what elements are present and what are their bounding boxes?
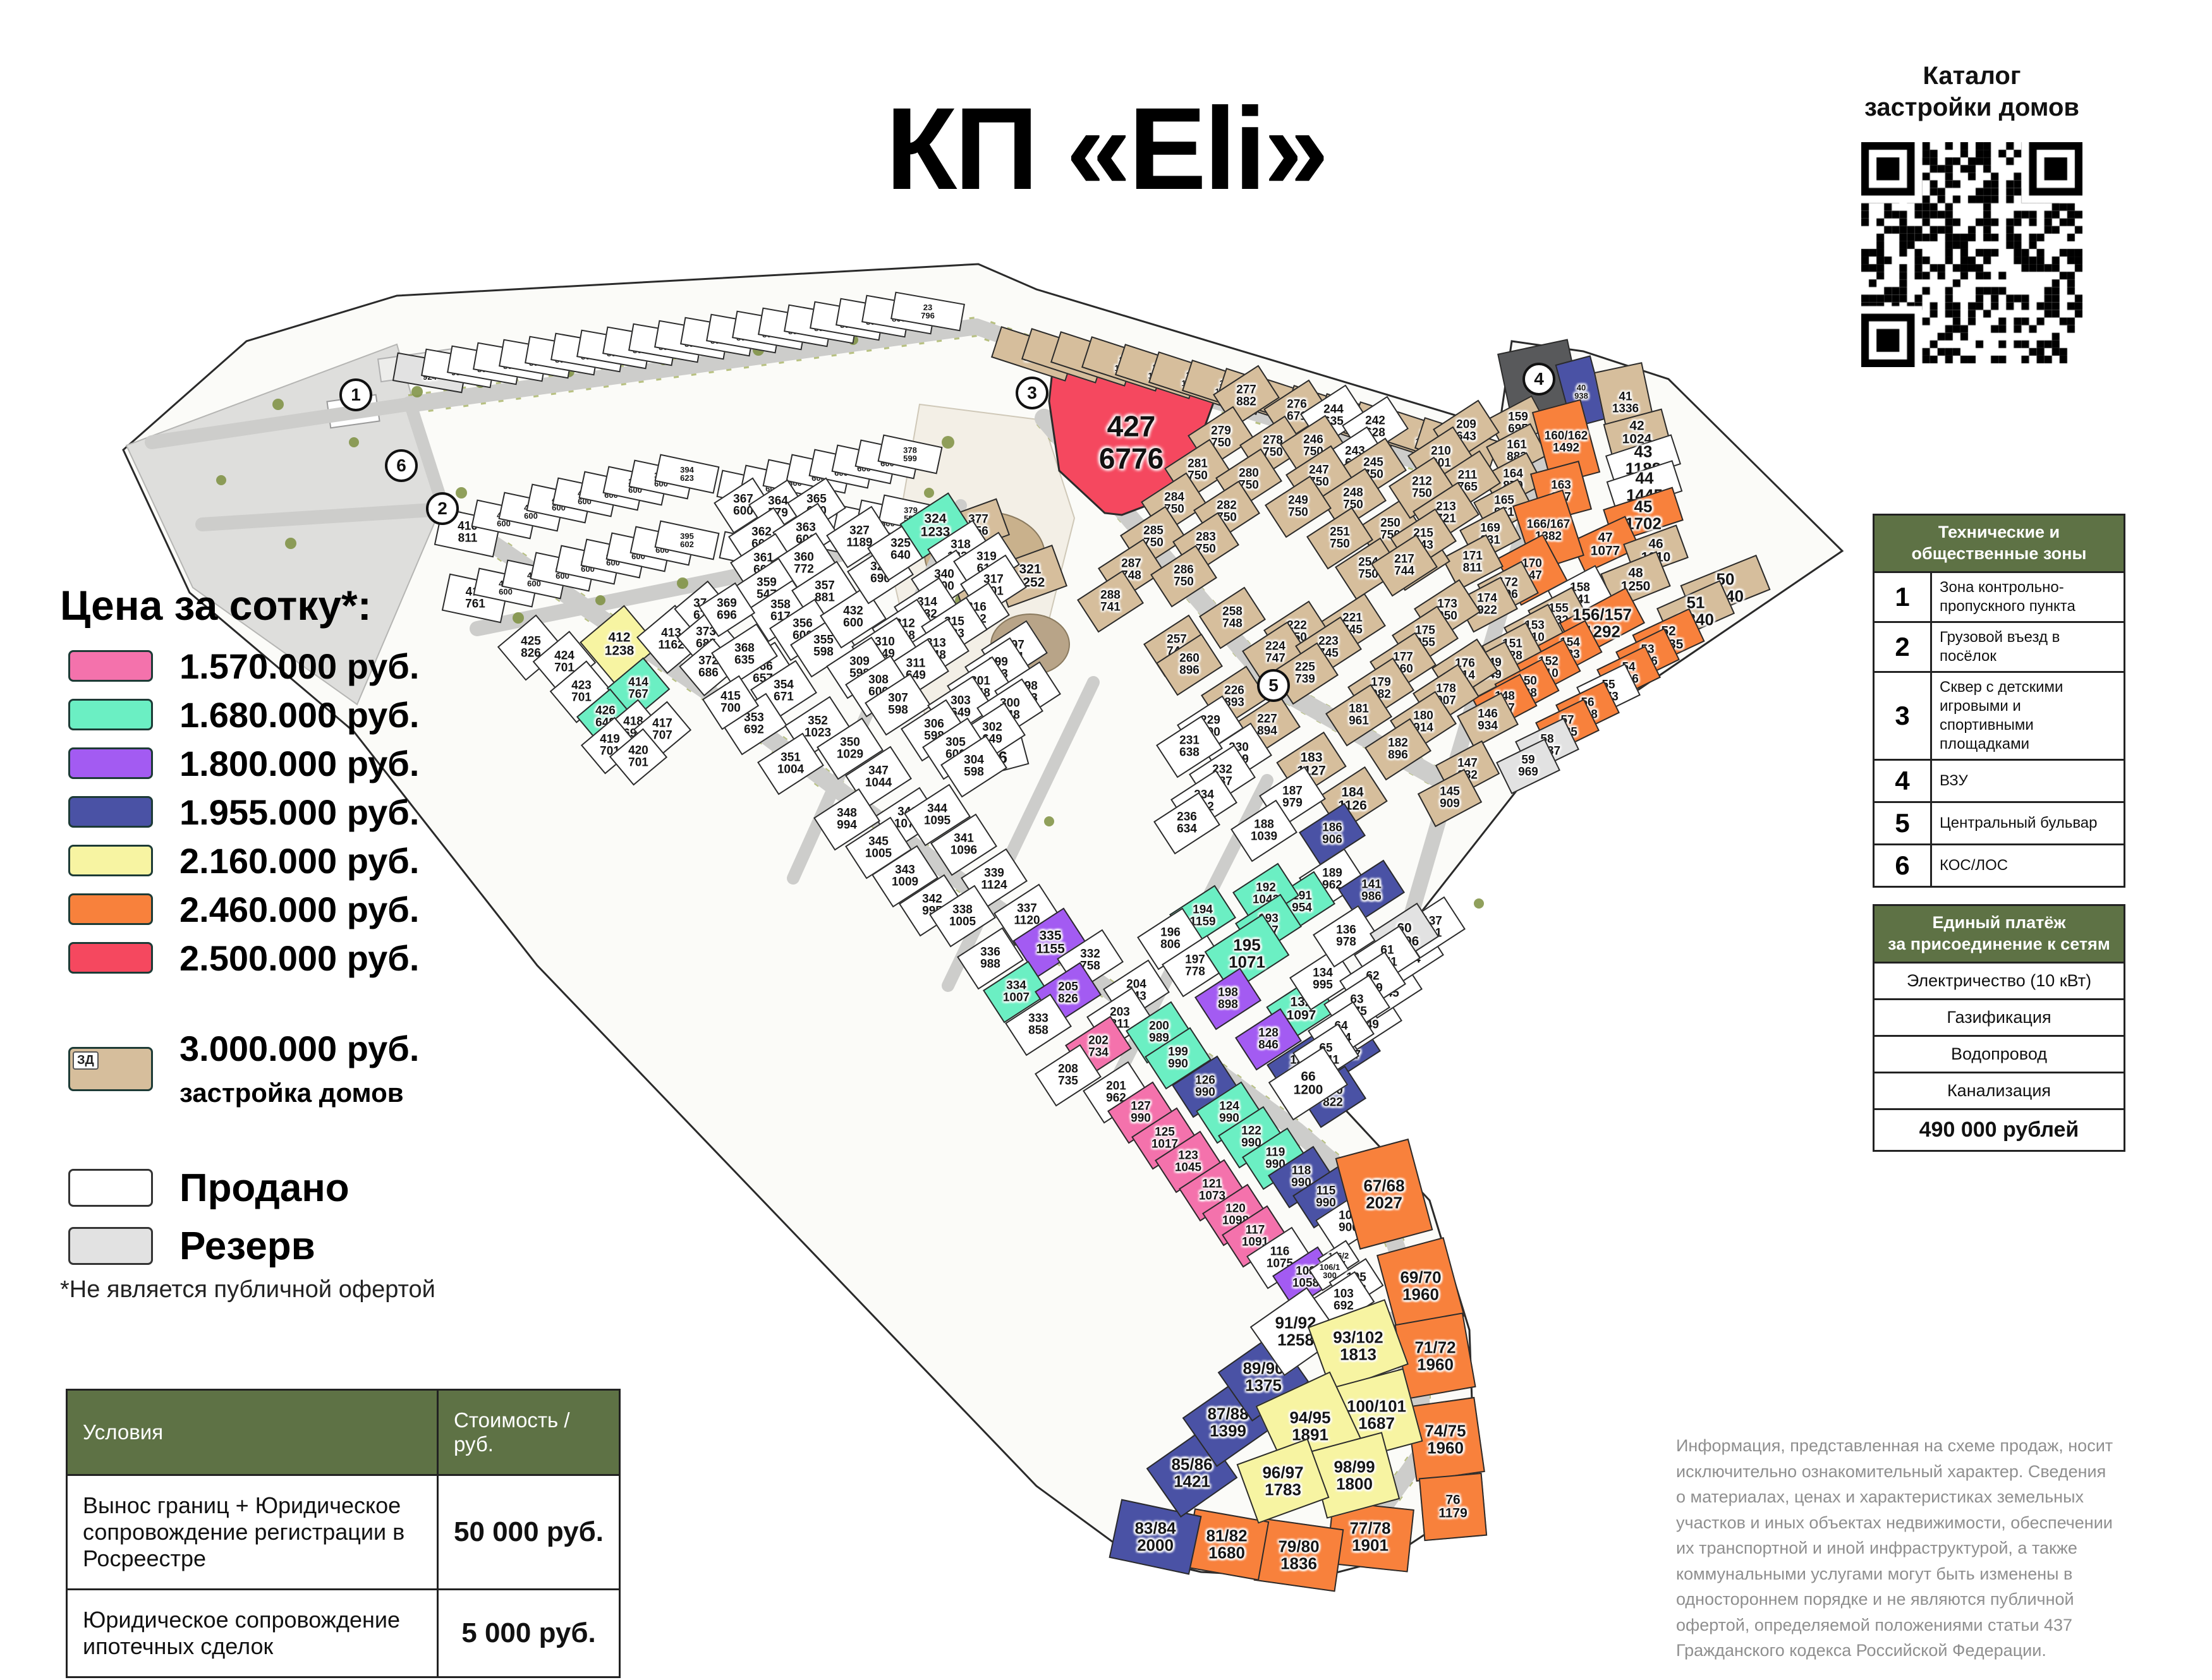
plot-label: 286750 <box>1174 564 1194 589</box>
zd-swatch: ЗД <box>68 1047 153 1091</box>
offer-footnote: *Не является публичной офертой <box>60 1276 435 1303</box>
plot-66: 661200 <box>1275 1061 1341 1106</box>
price-legend-heading: Цена за сотку*: <box>60 581 372 629</box>
plot-label: 236634 <box>1177 811 1197 836</box>
plot-label: 3381005 <box>949 904 976 929</box>
plot-label: 3431009 <box>892 864 918 889</box>
zone-number: 3 <box>1874 672 1931 759</box>
plot-label: 369696 <box>717 598 737 622</box>
plot-415: 415700 <box>708 684 753 721</box>
zone-number: 4 <box>1874 759 1931 802</box>
zone-row: 1 Зона контрольно-пропускного пункта <box>1874 572 2125 622</box>
utility-label: Электричество (10 кВт) <box>1874 962 2125 999</box>
plot-378: 378599 <box>896 424 924 485</box>
zone-number: 1 <box>1874 572 1931 622</box>
plot-label: 198898 <box>1218 987 1238 1012</box>
plot-96/97: 96/971783 <box>1245 1449 1321 1513</box>
zone-number: 5 <box>1874 802 1931 844</box>
utility-label: Водопровод <box>1874 1036 2125 1072</box>
plot-label: 71/721960 <box>1414 1339 1455 1372</box>
plot-label: 378599 <box>903 446 917 463</box>
zone-row: 4 ВЗУ <box>1874 759 2125 802</box>
plot-label: 355598 <box>813 634 834 659</box>
zone-number: 6 <box>1874 844 1931 886</box>
plot-188: 1881039 <box>1237 811 1291 850</box>
zones-table: Технические иобщественные зоны 1 Зона ко… <box>1873 514 2125 888</box>
plot-351: 3511004 <box>763 744 818 783</box>
plot-label: 260896 <box>1179 653 1200 677</box>
zone-label: Центральный бульвар <box>1931 802 2125 844</box>
plot-label: 83/842000 <box>1134 1520 1176 1553</box>
plot-label: 354671 <box>774 679 794 704</box>
price-legend-item: 2.460.000 руб. <box>68 889 419 929</box>
plot-79/80: 79/801836 <box>1258 1523 1340 1586</box>
price-legend-item: 1.680.000 руб. <box>68 694 419 735</box>
plot-label: 4121238 <box>605 631 635 658</box>
plot-145: 145909 <box>1423 779 1476 817</box>
plot-label: 87/881399 <box>1207 1405 1248 1439</box>
zone-number: 2 <box>1874 622 1931 672</box>
condition-price-cell: 50 000 руб. <box>438 1475 620 1590</box>
utilities-total: 490 000 рублей <box>1874 1109 2125 1151</box>
condition-cell: Юридическое сопровождение ипотечных сдел… <box>67 1590 438 1677</box>
plot-label: 74/751960 <box>1425 1422 1466 1456</box>
plot-label: 432600 <box>843 605 863 630</box>
status-swatch <box>68 1227 153 1265</box>
zone-row: 5 Центральный бульвар <box>1874 802 2125 844</box>
price-label: 2.460.000 руб. <box>179 889 419 930</box>
plot-304: 304598 <box>947 747 1001 786</box>
qr-heading: Каталогзастройки домов <box>1826 60 2117 123</box>
plot-label: 414767 <box>628 677 648 701</box>
zd-sub-label: застройка домов <box>179 1078 404 1108</box>
plot-label: 81/821680 <box>1206 1527 1247 1561</box>
plot-label: 3471044 <box>865 765 892 790</box>
plot-label: 160/1621492 <box>1545 430 1588 455</box>
plot-label: 251750 <box>1330 526 1350 551</box>
zone-circle-3: 3 <box>1016 377 1048 409</box>
plot-label: 171811 <box>1462 550 1483 575</box>
price-label: 2.500.000 руб. <box>179 938 419 979</box>
plot-368: 368635 <box>717 635 772 674</box>
plot-label: 145909 <box>1440 786 1460 811</box>
plot-label: 181961 <box>1349 703 1369 728</box>
plot-label: 411336 <box>1612 391 1639 416</box>
legal-disclaimer: Информация, представленная на схеме прод… <box>1676 1433 2118 1664</box>
zone-label: Грузовой въезд в посёлок <box>1931 622 2125 672</box>
plot-395: 395602 <box>673 510 701 571</box>
price-swatch <box>68 699 153 730</box>
zone-label: Зона контрольно-пропускного пункта <box>1931 572 2125 622</box>
price-swatch <box>68 845 153 876</box>
plot-label: 67/682027 <box>1363 1177 1404 1211</box>
plot-label: 136978 <box>1336 924 1356 949</box>
plot-label: 197778 <box>1185 954 1205 979</box>
plot-59: 59969 <box>1501 749 1555 784</box>
plot-label: 1951071 <box>1229 936 1265 970</box>
zone-circle-4: 4 <box>1522 363 1555 396</box>
plot-195: 1951071 <box>1212 929 1282 978</box>
zone-circle-2: 2 <box>426 492 459 525</box>
plot-label: 3391124 <box>981 867 1007 892</box>
zone-circle-6: 6 <box>385 449 418 482</box>
status-legend-item: Продано <box>68 1168 349 1208</box>
plot-186: 186906 <box>1305 814 1359 854</box>
plot-23: 23796 <box>914 276 942 347</box>
plot-label: 471077 <box>1591 531 1620 559</box>
plot-label: 182896 <box>1388 737 1408 762</box>
condition-cell: Вынос границ + Юридическое сопровождение… <box>67 1475 438 1590</box>
plot-label: 249750 <box>1288 495 1308 519</box>
plot-label: 3271189 <box>846 525 872 550</box>
plot-label: 661200 <box>1294 1070 1323 1097</box>
price-legend-item: 1.955.000 руб. <box>68 792 419 832</box>
plot-369: 369696 <box>705 591 749 628</box>
plot-label: 368635 <box>734 643 755 667</box>
price-swatch <box>68 796 153 828</box>
plot-394: 394623 <box>673 444 701 504</box>
conditions-col-header: Условия <box>67 1390 438 1475</box>
plot-label: 3341007 <box>1003 980 1030 1005</box>
plot-label: 217744 <box>1394 553 1414 578</box>
plot-338: 3381005 <box>935 897 990 936</box>
plot-198: 198898 <box>1201 979 1255 1018</box>
plot-label: 186906 <box>1322 822 1342 847</box>
plot-label: 3441095 <box>924 803 951 828</box>
price-legend-item: 2.500.000 руб. <box>68 938 419 978</box>
plot-label: 394623 <box>680 466 694 483</box>
plot-341: 3411096 <box>937 825 991 864</box>
zone-row: 2 Грузовой въезд в посёлок <box>1874 622 2125 672</box>
plot-label: 248750 <box>1343 487 1363 512</box>
plot-label: 395602 <box>680 532 694 549</box>
plot-label: 304598 <box>964 754 984 779</box>
utility-row: Канализация <box>1874 1072 2125 1109</box>
plot-333: 333858 <box>1011 1005 1066 1044</box>
status-label: Продано <box>179 1166 349 1211</box>
price-label: 2.160.000 руб. <box>179 840 419 881</box>
plot-label: 288741 <box>1100 589 1121 614</box>
price-label: 1.955.000 руб. <box>179 792 419 833</box>
zd-legend-row: ЗД 3.000.000 руб.застройка домов <box>68 1049 419 1089</box>
plot-236: 236634 <box>1160 804 1214 843</box>
plot-141: 141986 <box>1344 871 1399 910</box>
plot-label: 77/781901 <box>1349 1520 1390 1553</box>
plot-286: 286750 <box>1157 557 1211 596</box>
plot-label: 231638 <box>1179 735 1200 759</box>
price-legend-item: 1.570.000 руб. <box>68 646 419 686</box>
plot-258: 258748 <box>1205 598 1260 638</box>
plot-label: 98/991800 <box>1334 1458 1375 1492</box>
plot-label: 94/951891 <box>1289 1409 1330 1442</box>
price-label: 1.800.000 руб. <box>179 743 419 784</box>
conditions-table: Условия Стоимость / руб. Вынос границ + … <box>66 1389 621 1678</box>
plot-label: 69/701960 <box>1400 1269 1441 1302</box>
plot-label: 3411096 <box>951 833 977 857</box>
price-legend-item: 2.160.000 руб. <box>68 840 419 881</box>
zd-price-label: 3.000.000 руб.застройка домов <box>179 1028 419 1110</box>
price-swatch <box>68 650 153 682</box>
conditions-row: Вынос границ + Юридическое сопровождение… <box>67 1475 620 1590</box>
plot-67/68: 67/682027 <box>1346 1147 1422 1242</box>
condition-price-cell: 5 000 руб. <box>438 1590 620 1677</box>
plot-181: 181961 <box>1332 696 1386 735</box>
plot-427-label: 4276776 <box>1099 410 1164 474</box>
utilities-total-row: 490 000 рублей <box>1874 1109 2125 1151</box>
zone-row: 6 КОС/ЛОС <box>1874 844 2125 886</box>
utility-row: Водопровод <box>1874 1036 2125 1072</box>
plot-label: 208735 <box>1058 1063 1078 1088</box>
plot-label: 141986 <box>1361 879 1382 903</box>
plot-label: 277882 <box>1236 384 1256 409</box>
plot-label: 205826 <box>1058 981 1078 1006</box>
qr-code <box>1861 142 2082 367</box>
plot-label: 174922 <box>1477 593 1497 617</box>
status-swatch <box>68 1169 153 1207</box>
plot-93/102: 93/1021813 <box>1317 1311 1399 1381</box>
plot-label: 1881039 <box>1251 819 1277 843</box>
plot-label: 187979 <box>1282 785 1303 810</box>
zone-label: Сквер с детскими игровыми и спортивными … <box>1931 672 2125 759</box>
page: { "title": "КП «Eli»", "qr": {"heading":… <box>0 0 2212 1677</box>
utility-row: Электричество (10 кВт) <box>1874 962 2125 999</box>
plot-label: 3511004 <box>777 752 804 777</box>
plot-label: 85/861421 <box>1171 1456 1212 1489</box>
plot-420: 420701 <box>616 738 660 776</box>
plot-182: 182896 <box>1371 730 1425 769</box>
plot-label: 23796 <box>921 303 935 320</box>
zone-row: 3 Сквер с детскими игровыми и спортивным… <box>1874 672 2125 759</box>
plot-label: 3351155 <box>1036 929 1065 957</box>
zd-badge: ЗД <box>73 1051 99 1070</box>
status-label: Резерв <box>179 1224 315 1269</box>
plot-label: 333858 <box>1028 1013 1048 1037</box>
plot-label: 40938 <box>1574 384 1588 401</box>
price-legend-item: 1.800.000 руб. <box>68 743 419 783</box>
plot-label: 420701 <box>628 745 648 770</box>
plot-label: 307598 <box>888 692 908 717</box>
plot-label: 96/971783 <box>1262 1464 1303 1497</box>
utilities-table: Единый платёжза присоединение к сетям Эл… <box>1873 904 2125 1152</box>
plot-76: 761179 <box>1421 1475 1485 1538</box>
zone-label: КОС/ЛОС <box>1931 844 2125 886</box>
plot-label: 225739 <box>1295 662 1315 686</box>
price-label: 1.570.000 руб. <box>179 646 419 687</box>
zones-table-heading: Технические иобщественные зоны <box>1874 515 2125 572</box>
conditions-row: Юридическое сопровождение ипотечных сдел… <box>67 1590 620 1677</box>
plot-288: 288741 <box>1083 582 1138 621</box>
status-legend-item: Резерв <box>68 1226 315 1266</box>
price-swatch <box>68 893 153 925</box>
plot-label: 79/801836 <box>1278 1538 1319 1571</box>
plot-label: 415700 <box>720 691 741 715</box>
price-swatch <box>68 942 153 974</box>
zone-label: ВЗУ <box>1931 759 2125 802</box>
plot-label: 59969 <box>1518 754 1538 779</box>
price-label: 1.680.000 руб. <box>179 694 419 735</box>
plot-label: 93/1021813 <box>1333 1329 1383 1362</box>
price-col-header: Стоимость / руб. <box>438 1390 620 1475</box>
plot-label: 336988 <box>980 946 1000 971</box>
utility-label: Канализация <box>1874 1072 2125 1109</box>
plot-label: 761179 <box>1438 1494 1468 1521</box>
utility-label: Газификация <box>1874 999 2125 1036</box>
price-swatch <box>68 747 153 779</box>
utility-row: Газификация <box>1874 999 2125 1036</box>
zone-circle-5: 5 <box>1257 669 1290 702</box>
plot-label: 146934 <box>1478 708 1498 733</box>
plot-83/84: 83/842000 <box>1114 1507 1196 1567</box>
plot-label: 103692 <box>1334 1288 1354 1313</box>
plot-label: 258748 <box>1222 606 1243 631</box>
plot-217: 217744 <box>1377 546 1431 585</box>
zone-circle-1: 1 <box>339 378 372 411</box>
utilities-table-heading: Единый платёжза присоединение к сетям <box>1874 905 2125 963</box>
plot-98/99: 98/991800 <box>1316 1441 1392 1510</box>
